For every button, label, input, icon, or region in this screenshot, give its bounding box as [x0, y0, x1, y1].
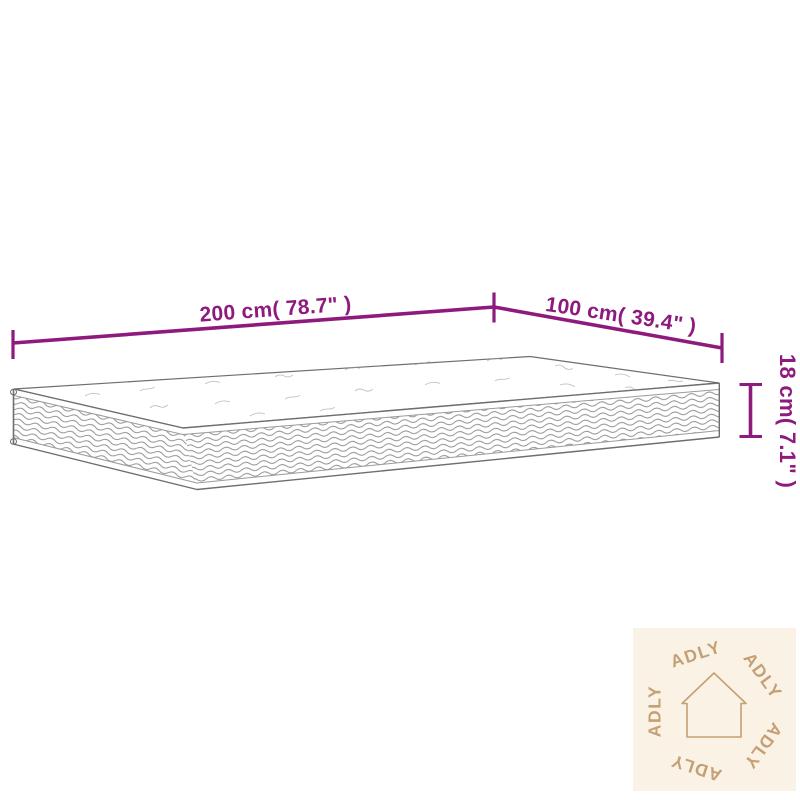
- dimension-label-height: 18 cm( 7.1" ): [775, 354, 800, 488]
- dimension-length: 200 cm( 78.7" ): [13, 292, 494, 359]
- mattress-drawing: [11, 357, 720, 490]
- product-dimension-diagram: 200 cm( 78.7" ) 100 cm( 39.4" ) 18 cm( 7…: [0, 0, 800, 800]
- dimension-label-length: 200 cm( 78.7" ): [199, 292, 352, 326]
- brand-watermark: ADLY ADLY ADLY ADLY ADLY: [633, 628, 796, 791]
- dimension-width: 100 cm( 39.4" ): [494, 293, 722, 363]
- dimension-height: 18 cm( 7.1" ): [740, 354, 800, 488]
- diagram-canvas: 200 cm( 78.7" ) 100 cm( 39.4" ) 18 cm( 7…: [0, 0, 800, 800]
- watermark-brand-text: ADLY: [645, 685, 665, 737]
